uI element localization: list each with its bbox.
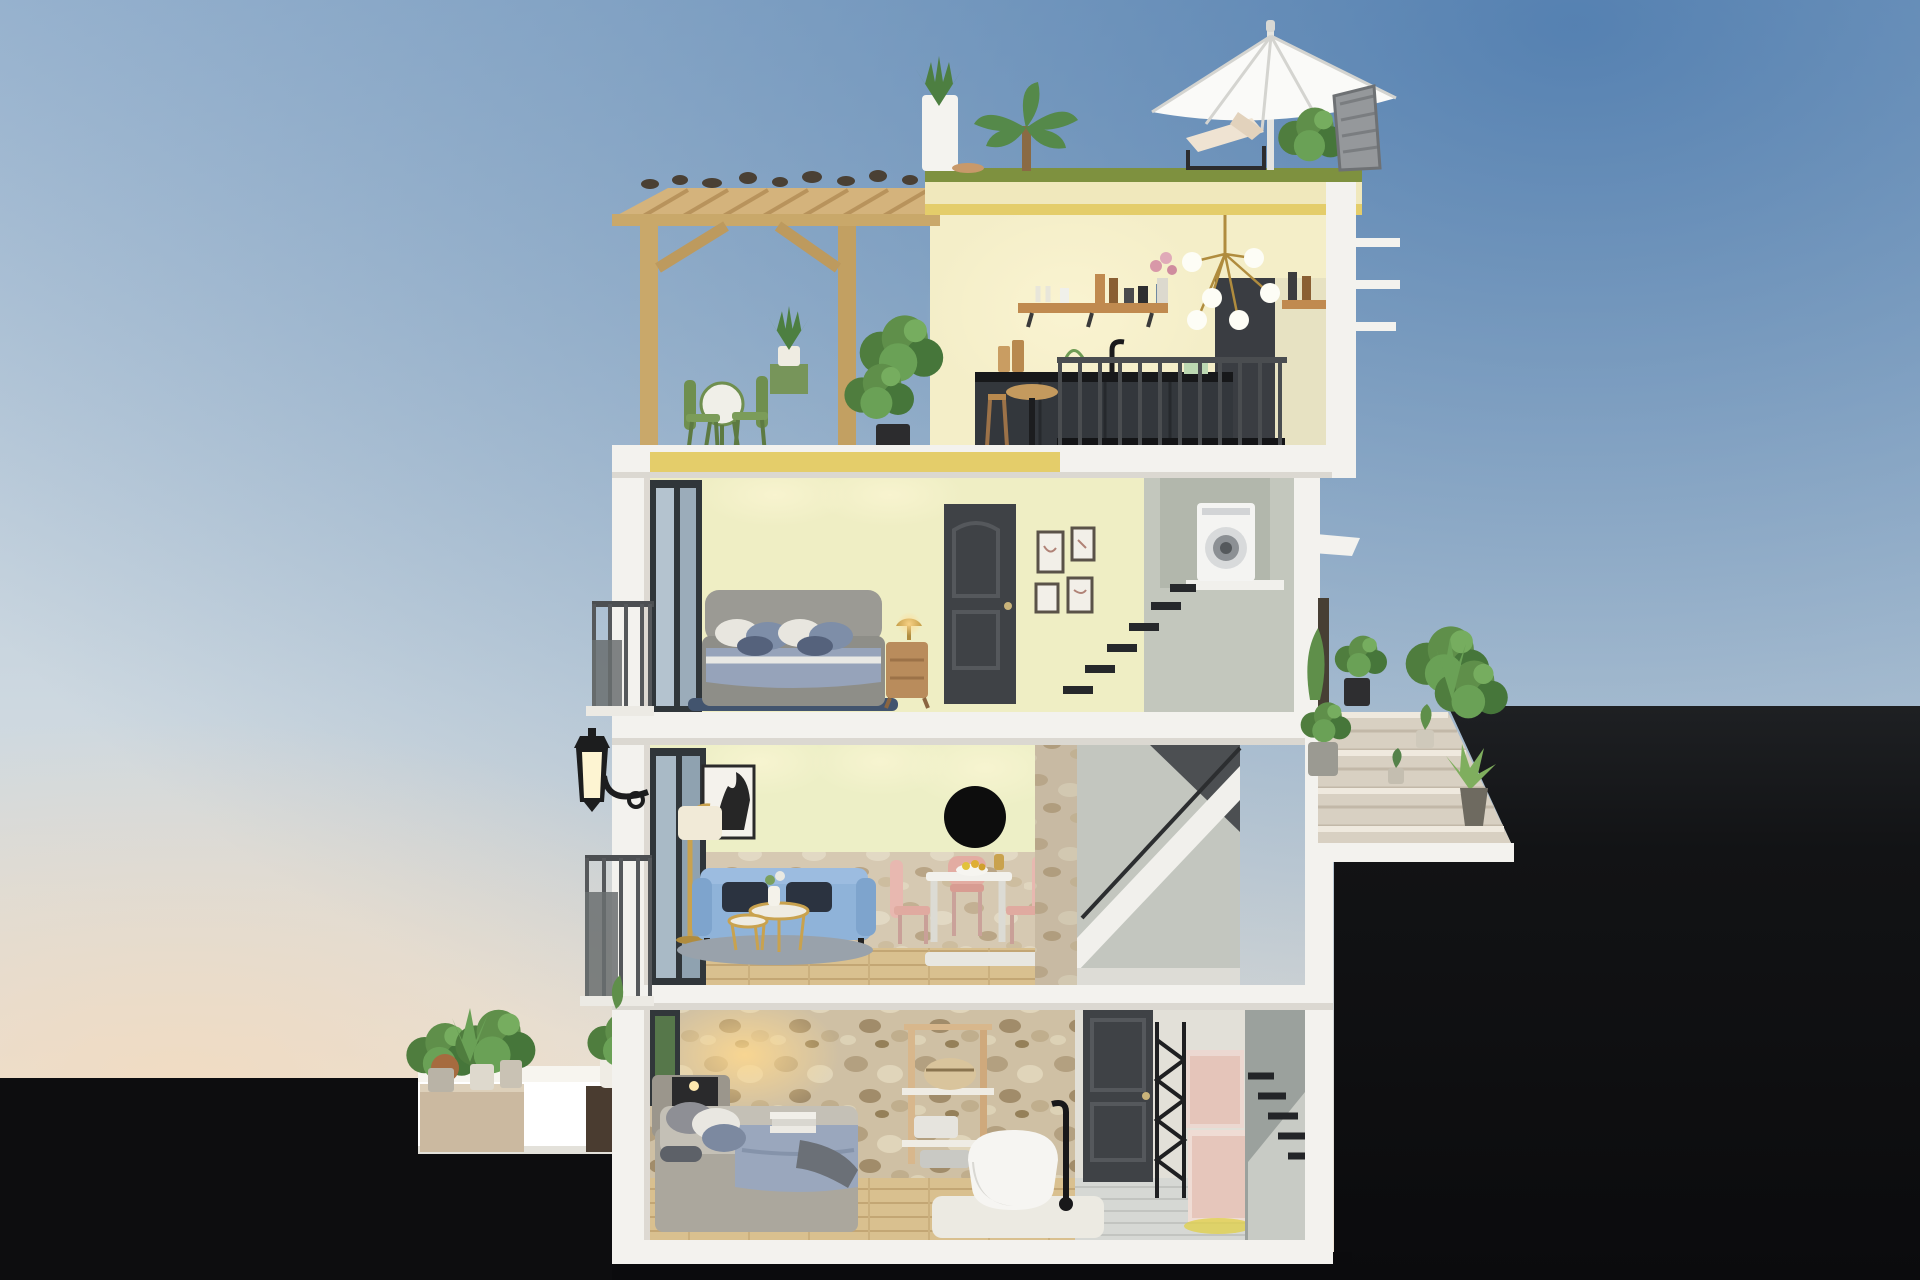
rolled-towels xyxy=(920,1150,970,1168)
stair-landing xyxy=(1318,843,1514,862)
washing-machine xyxy=(1197,503,1255,581)
planter-saucer xyxy=(952,163,984,173)
round-rug xyxy=(677,935,873,965)
bedroom-bed xyxy=(702,590,885,706)
slab-roof xyxy=(925,168,1362,215)
duvet xyxy=(706,648,881,688)
bolster-pillow xyxy=(660,1146,702,1162)
third-floor-bedroom xyxy=(650,463,1294,712)
pergola-beam xyxy=(612,214,940,226)
second-floor-living xyxy=(650,728,1240,985)
black-round-mirror xyxy=(944,786,1006,848)
washer-platform xyxy=(1186,580,1284,590)
gold-carafe xyxy=(994,854,1004,870)
living-stairwell xyxy=(1077,745,1240,985)
balcony-mesh-panel xyxy=(592,640,622,710)
vase-flowers xyxy=(765,875,775,885)
plant-pot xyxy=(428,1068,454,1092)
pergola-post xyxy=(838,226,856,452)
roof-yellow-edge xyxy=(925,204,1362,215)
vase-flowers xyxy=(775,871,785,881)
right-wall-upper xyxy=(1326,182,1356,478)
pillar-shading xyxy=(1035,745,1077,985)
lantern-glass-glow xyxy=(582,752,602,798)
side-shelf xyxy=(1282,300,1326,309)
umbrella-finial xyxy=(1266,20,1275,32)
basket xyxy=(924,1058,976,1090)
cutting-board xyxy=(998,346,1010,372)
candle-flame xyxy=(689,1081,699,1091)
sofa-arm xyxy=(856,878,876,936)
pillow-accent xyxy=(737,636,773,656)
privacy-screen xyxy=(1334,86,1380,170)
towel-stack xyxy=(770,1112,816,1133)
left-wall-shadow xyxy=(644,445,650,1245)
lamp-shade xyxy=(678,806,722,840)
sofa-arm xyxy=(692,878,712,936)
scene-canvas xyxy=(0,0,1920,1280)
cutting-board xyxy=(1012,340,1024,372)
pillow-accent xyxy=(797,636,833,656)
french-door-glass xyxy=(656,488,674,706)
slab-living xyxy=(612,985,1333,1010)
stairwell-base xyxy=(1077,968,1240,985)
pergola-post xyxy=(640,226,658,452)
vase xyxy=(768,886,780,906)
door-knob xyxy=(1142,1092,1150,1100)
stone-planter-trough xyxy=(420,1088,524,1152)
bedroom-door xyxy=(944,504,1016,704)
base-plinth xyxy=(612,1240,1333,1264)
faucet-base xyxy=(1059,1197,1073,1211)
balcony-ledge xyxy=(586,706,654,716)
architectural-render xyxy=(0,0,1920,1280)
stool-seat xyxy=(988,394,1006,400)
lantern-cap xyxy=(574,736,610,748)
door-knob xyxy=(1004,602,1012,610)
lamp-glow xyxy=(897,612,921,636)
slab-terrace xyxy=(612,445,1332,478)
ground-stair xyxy=(1245,1008,1305,1240)
pillow-blue xyxy=(702,1124,746,1152)
mint-box xyxy=(1184,362,1208,374)
washer-panel xyxy=(1202,508,1250,515)
under-box-glow xyxy=(1184,1218,1252,1234)
rolled-towels xyxy=(914,1116,958,1138)
plant-pot xyxy=(500,1060,522,1088)
plant-pot xyxy=(470,1064,494,1090)
ground-floor xyxy=(650,995,1305,1245)
tub-body xyxy=(968,1130,1058,1210)
pink-boxes xyxy=(1184,1050,1252,1234)
french-door-glass xyxy=(656,756,676,978)
green-roof-strip xyxy=(925,168,1362,182)
french-door-glass xyxy=(680,488,696,706)
slab-yellow-band xyxy=(650,452,1060,474)
slab-bedroom xyxy=(612,712,1320,745)
